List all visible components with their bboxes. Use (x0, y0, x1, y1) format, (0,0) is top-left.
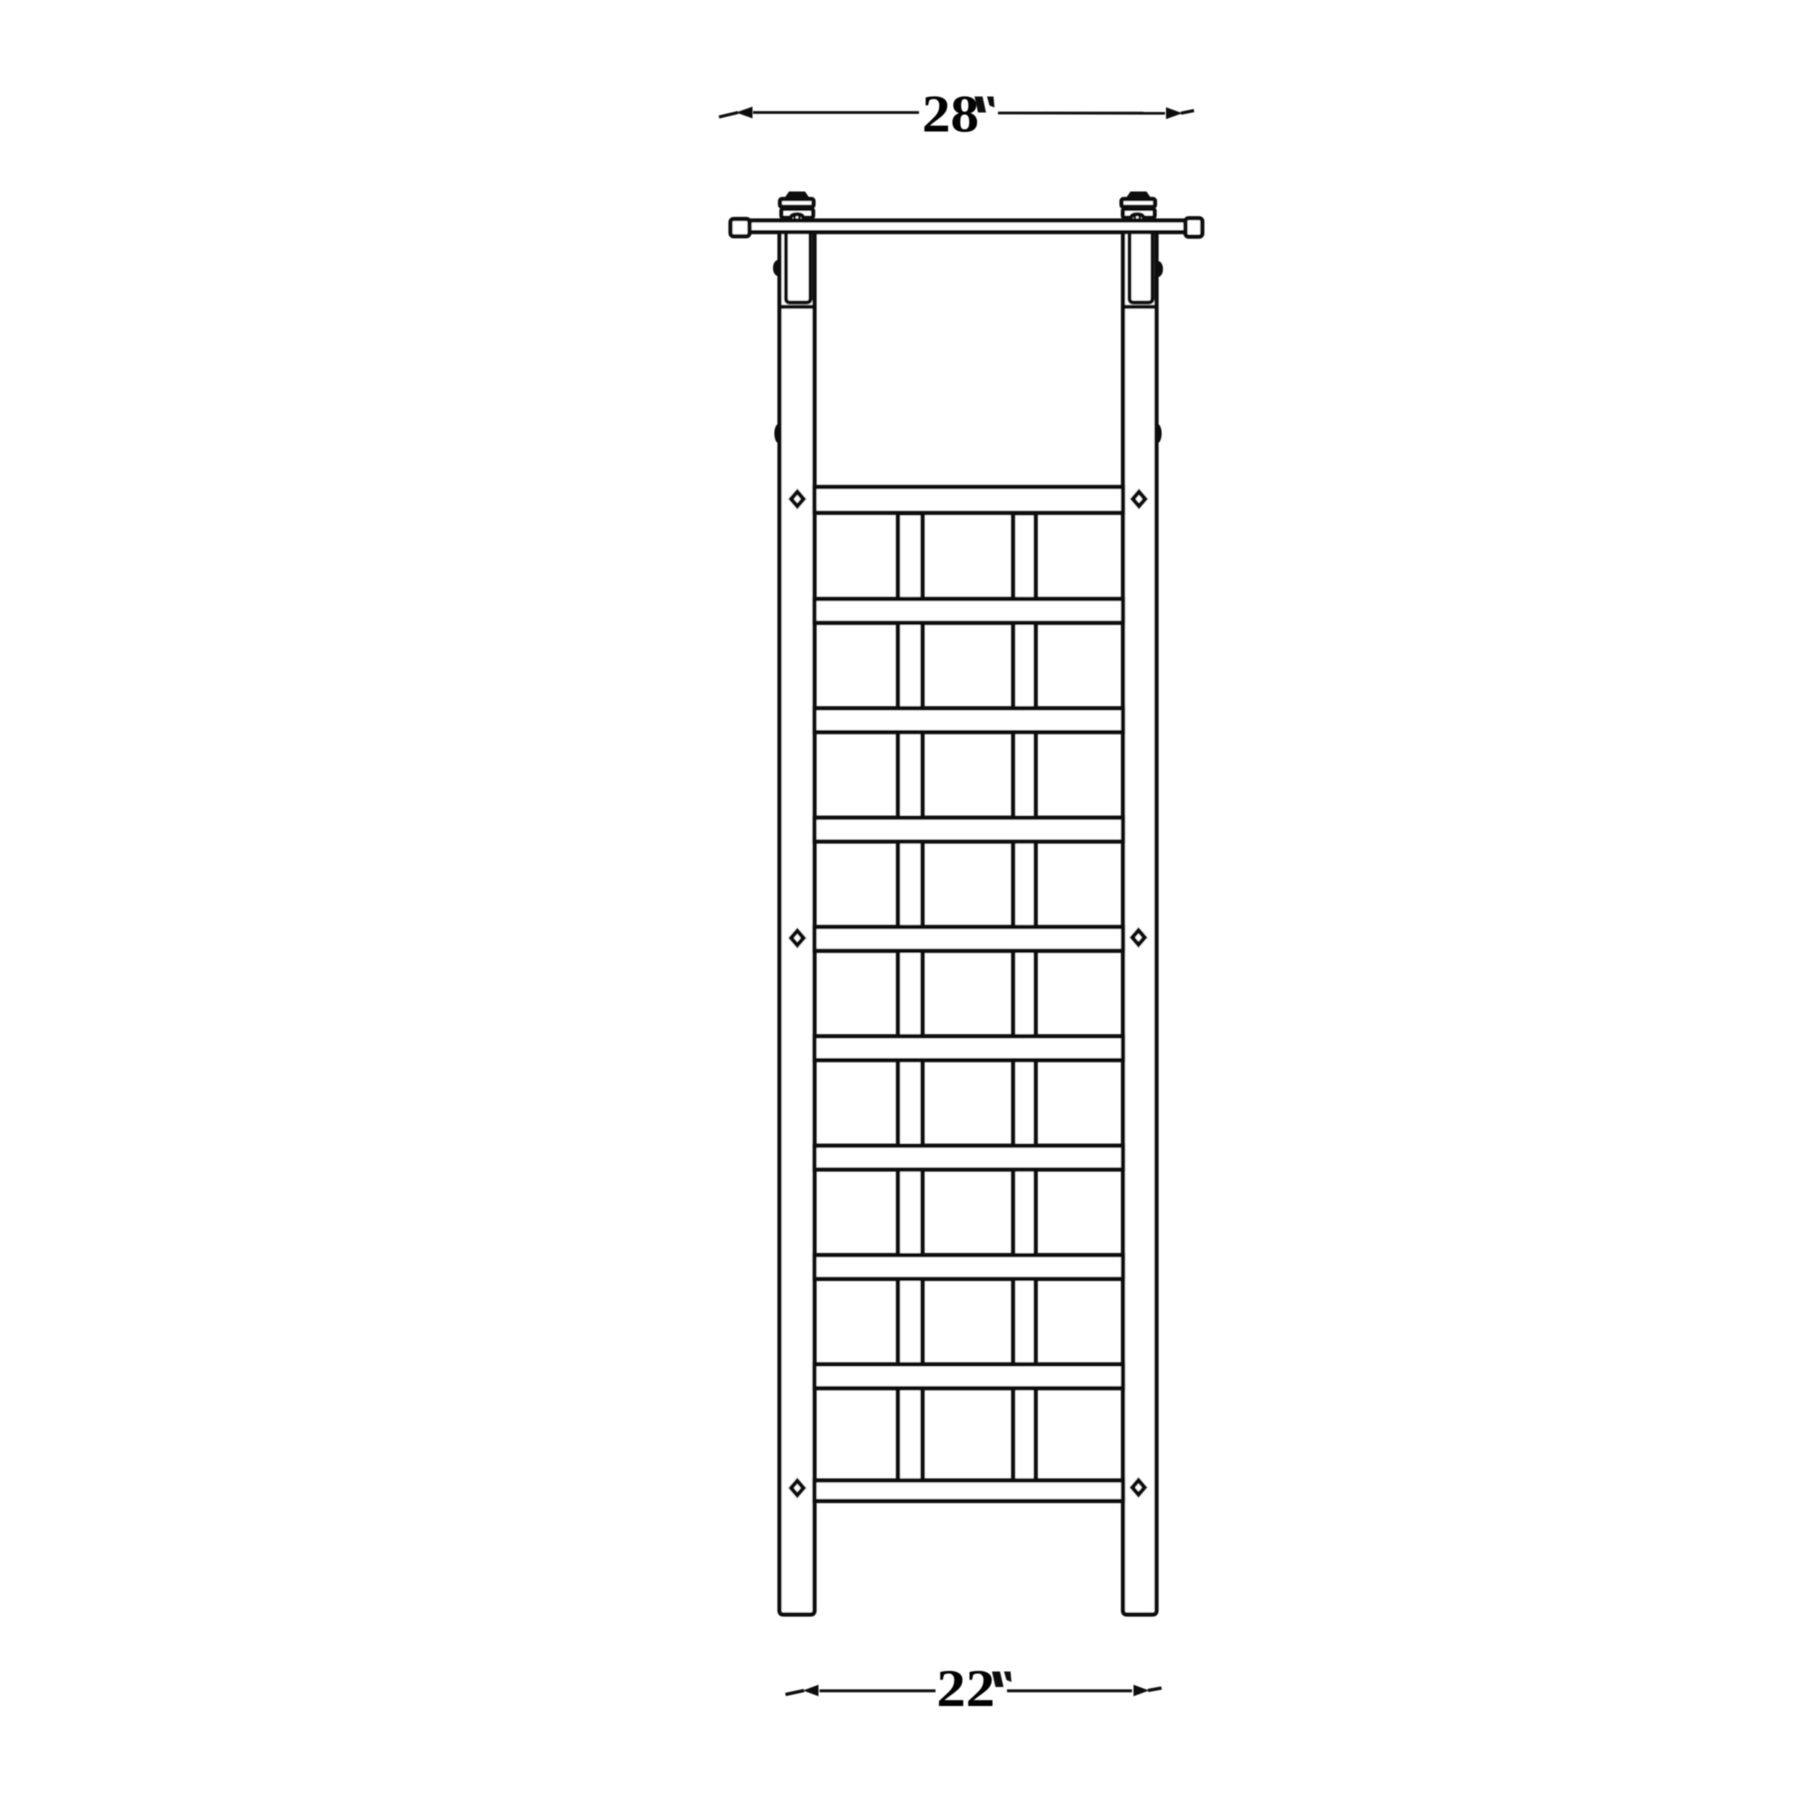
svg-text:22: 22 (937, 1660, 996, 1718)
svg-text:28: 28 (922, 86, 979, 144)
